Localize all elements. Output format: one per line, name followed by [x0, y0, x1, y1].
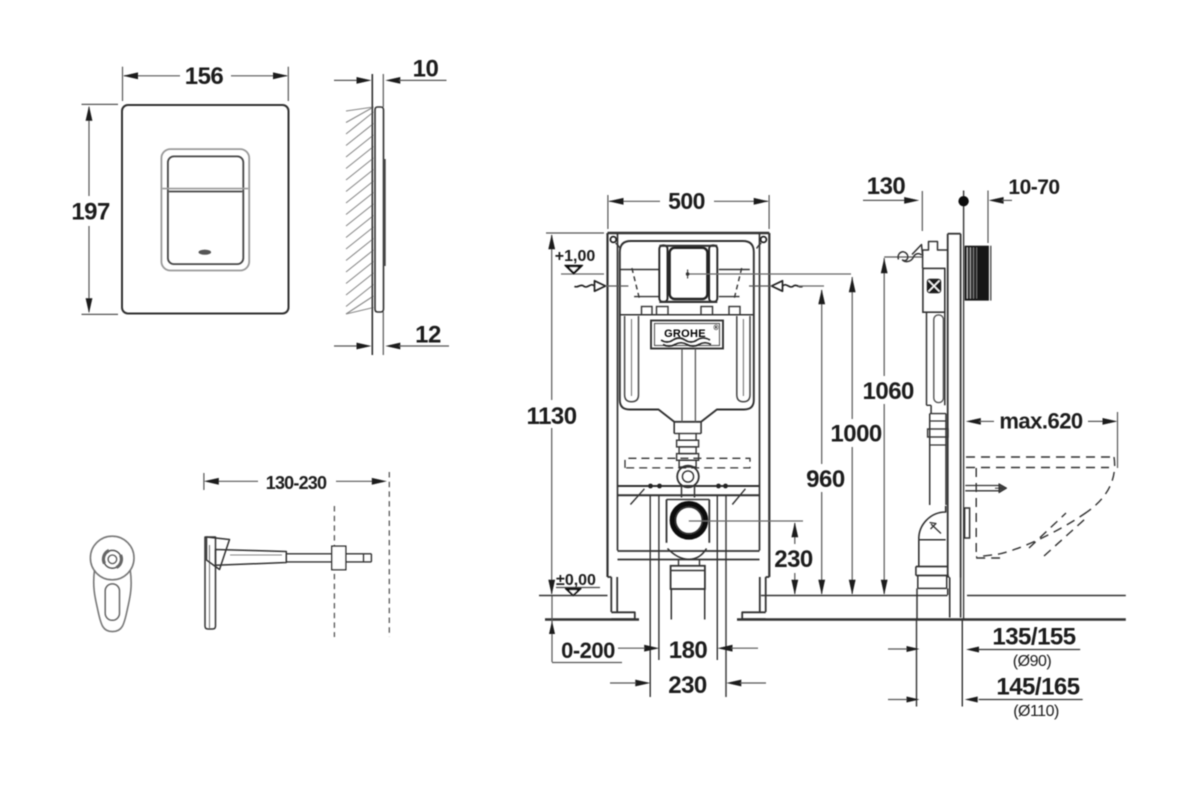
- svg-text:130: 130: [867, 173, 906, 200]
- svg-text:197: 197: [71, 199, 110, 226]
- svg-text:10: 10: [413, 56, 439, 83]
- svg-text:(Ø90): (Ø90): [1013, 653, 1052, 670]
- svg-text:180: 180: [669, 637, 708, 664]
- svg-text:130-230: 130-230: [266, 473, 327, 493]
- svg-text:10-70: 10-70: [1008, 176, 1059, 199]
- svg-text:960: 960: [806, 466, 845, 493]
- svg-text:(Ø110): (Ø110): [1013, 703, 1059, 720]
- svg-text:500: 500: [668, 188, 705, 214]
- svg-text:12: 12: [415, 322, 441, 349]
- svg-text:0-200: 0-200: [561, 638, 615, 663]
- svg-text:230: 230: [774, 546, 813, 573]
- svg-text:±0,00: ±0,00: [556, 572, 596, 589]
- svg-text:135/155: 135/155: [992, 624, 1075, 651]
- svg-text:1130: 1130: [527, 403, 577, 430]
- svg-text:+1,00: +1,00: [555, 248, 596, 265]
- svg-text:230: 230: [668, 672, 707, 699]
- svg-text:1000: 1000: [830, 421, 882, 448]
- svg-text:®: ®: [714, 324, 720, 332]
- svg-text:max.620: max.620: [999, 409, 1083, 434]
- svg-text:145/165: 145/165: [996, 674, 1079, 701]
- svg-text:156: 156: [185, 63, 224, 90]
- svg-text:1060: 1060: [863, 378, 915, 405]
